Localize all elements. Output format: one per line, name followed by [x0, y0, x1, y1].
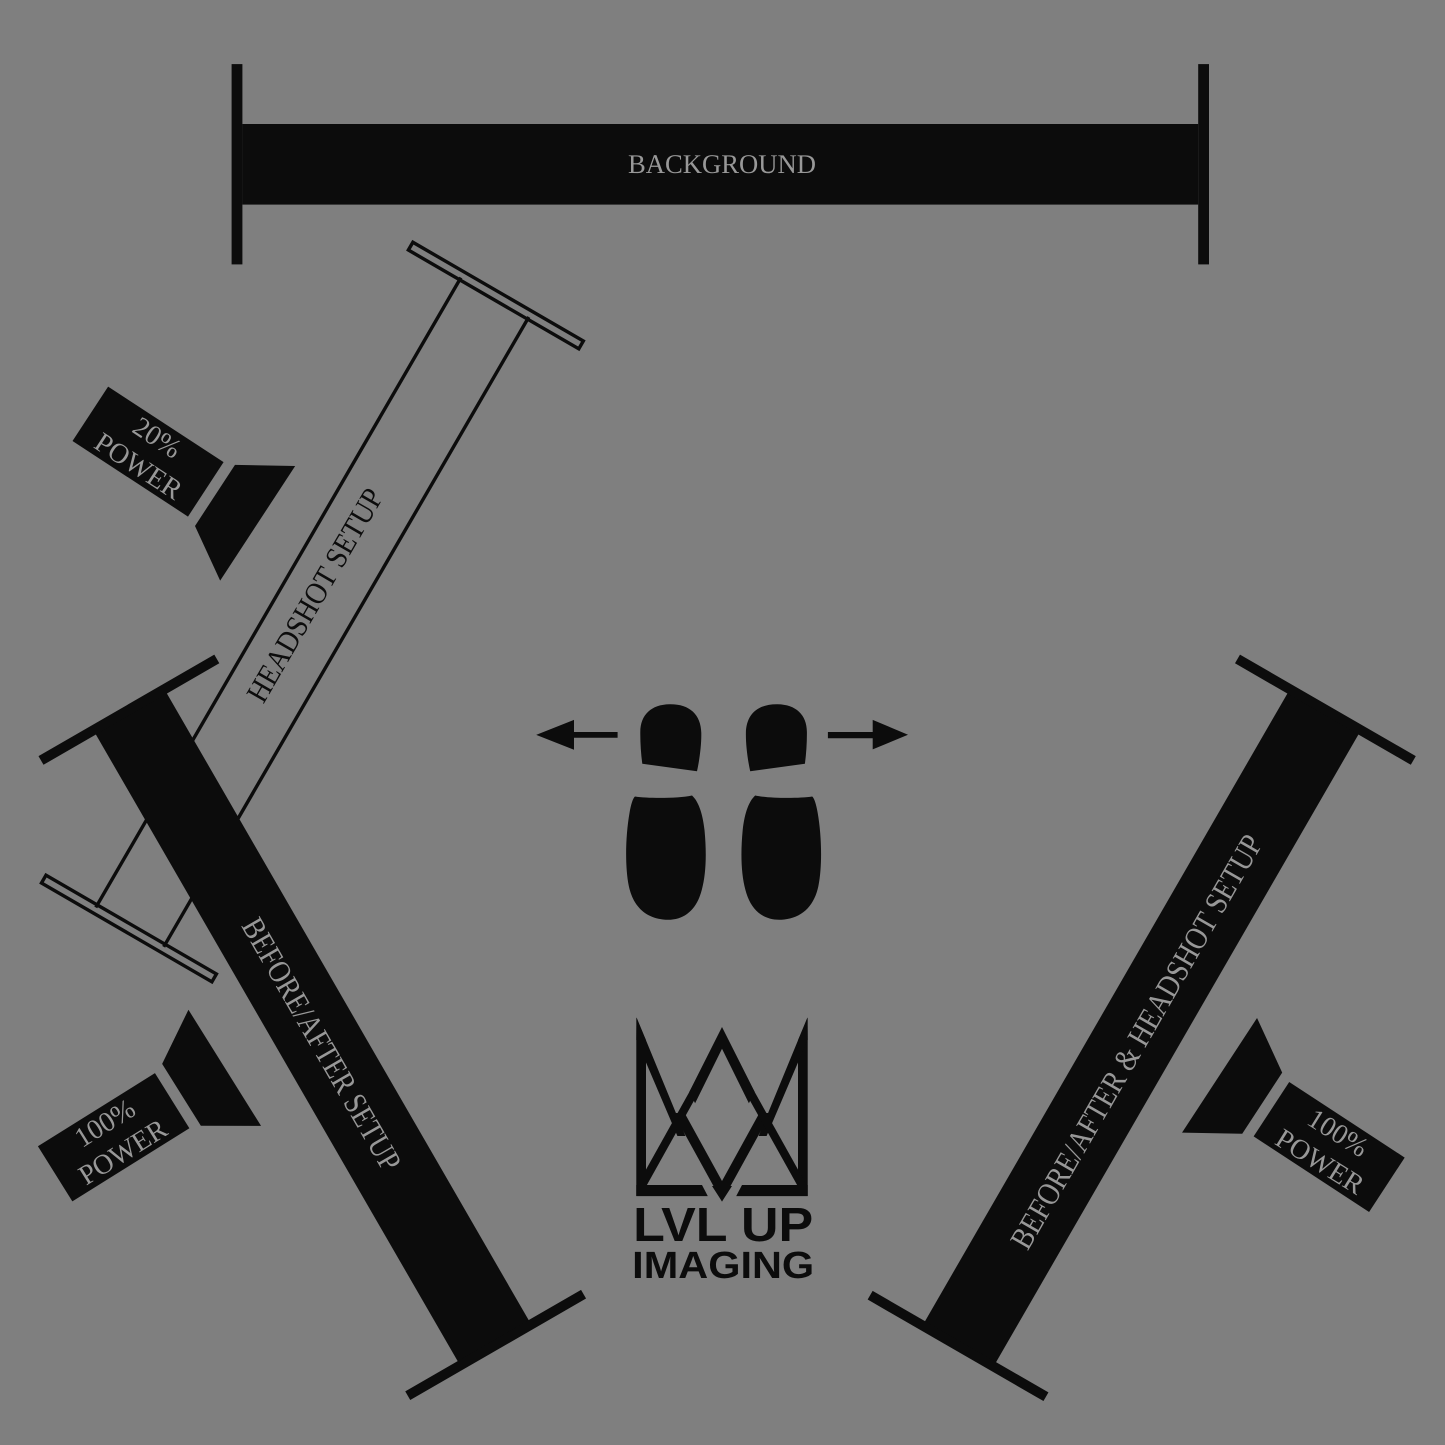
svg-text:BEFORE/AFTER & HEADSHOT SETUP: BEFORE/AFTER & HEADSHOT SETUP: [1003, 828, 1270, 1255]
svg-text:IMAGING: IMAGING: [632, 1245, 814, 1287]
svg-text:BACKGROUND: BACKGROUND: [628, 149, 816, 179]
svg-text:BEFORE/AFTER SETUP: BEFORE/AFTER SETUP: [235, 911, 409, 1177]
